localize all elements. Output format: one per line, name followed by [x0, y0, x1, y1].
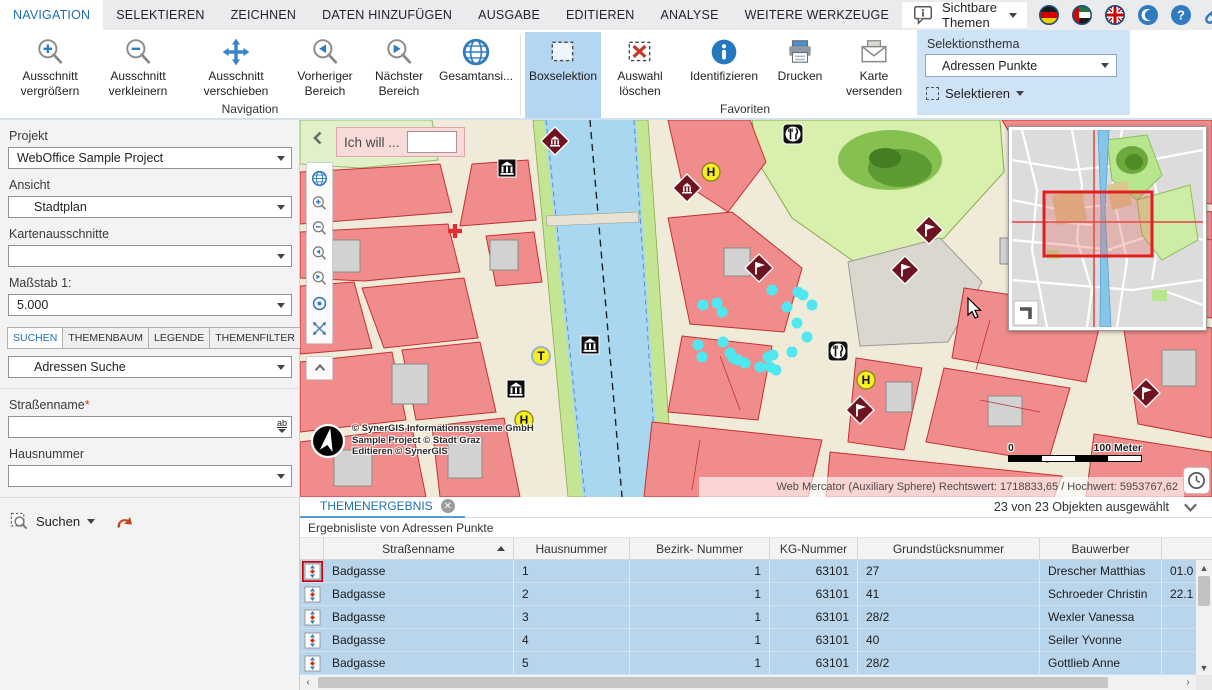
next-extent-map-icon[interactable]	[309, 267, 331, 289]
button-label: Gesamtansi...	[439, 69, 513, 84]
scale-dropdown[interactable]: 5.000	[8, 294, 292, 316]
crescent-language-icon[interactable]	[1137, 4, 1159, 26]
tab-analyse[interactable]: ANALYSE	[647, 0, 731, 30]
results-subtitle: Ergebnisliste von Adressen Punkte	[300, 518, 1212, 538]
selection-theme-value: Adressen Punkte	[942, 59, 1037, 73]
zoom-to-record-icon[interactable]	[300, 583, 324, 605]
cell-bezirk: 1	[630, 583, 770, 605]
search-theme-value: Adressen Suche	[17, 360, 126, 374]
print-button[interactable]: Drucken	[769, 32, 831, 104]
svg-text:H: H	[862, 373, 871, 387]
project-value: WebOffice Sample Project	[17, 151, 163, 165]
button-label: Boxselektion	[529, 69, 597, 84]
cell-bauwerber: Gottlieb Anne	[1040, 652, 1162, 674]
cell-datum	[1162, 652, 1196, 674]
table-row[interactable]: Badgasse 3 1 63101 28/2 Wexler Vanessa	[300, 606, 1212, 629]
table-row[interactable]: Badgasse 2 1 63101 41 Schroeder Christin…	[300, 583, 1212, 606]
group-label-navigation: Navigation	[195, 102, 305, 116]
search-button[interactable]: Suchen	[10, 512, 95, 531]
history-clock-button[interactable]	[1183, 467, 1210, 494]
overview-map-image	[1012, 130, 1203, 327]
svg-text:H: H	[707, 165, 716, 179]
menu-right-icons: Sichtbare Themen ?	[902, 0, 1212, 30]
selection-box-icon	[926, 87, 939, 100]
autocomplete-sort-icon[interactable]: ab	[277, 419, 287, 433]
clear-selection-button[interactable]: Auswahl löschen	[601, 32, 679, 104]
search-selection-icon	[10, 512, 29, 531]
button-label: versenden	[846, 84, 902, 99]
group-separator	[520, 35, 521, 115]
close-tab-icon[interactable]: ✕	[441, 499, 455, 513]
menu-bar: NAVIGATION SELEKTIEREN ZEICHNEN DATEN HI…	[0, 0, 1212, 30]
header-grundstuecksnummer[interactable]: Grundstücksnummer	[858, 538, 1040, 559]
selection-theme-dropdown[interactable]: Adressen Punkte	[925, 54, 1117, 77]
map-toolbar	[306, 162, 333, 344]
copyright-line1: © SynerGIS Informationssysteme GmbH	[352, 423, 534, 435]
cell-bauwerber: Drescher Matthias	[1040, 560, 1162, 582]
button-label: Ausschnitt	[110, 69, 165, 84]
cell-hausnummer: 3	[514, 606, 630, 628]
header-label: KG-Nummer	[780, 542, 847, 556]
cell-hausnummer: 5	[514, 652, 630, 674]
globe-icon	[461, 35, 491, 69]
collapse-panel-icon[interactable]	[1183, 502, 1198, 513]
tab-legende[interactable]: LEGENDE	[148, 327, 210, 349]
cell-datum	[1162, 629, 1196, 651]
tab-editieren[interactable]: EDITIEREN	[553, 0, 647, 30]
zoom-to-record-icon[interactable]	[300, 629, 324, 651]
tab-themenfilter[interactable]: THEMENFILTER	[209, 327, 301, 349]
table-row[interactable]: Badgasse 1 1 63101 27 Drescher Matthias …	[300, 560, 1212, 583]
selection-box-icon	[548, 35, 578, 69]
results-tab-label: THEMENERGEBNIS	[320, 499, 433, 513]
house-number-label: Hausnummer	[9, 447, 299, 461]
sidebar-collapse-button[interactable]	[307, 127, 329, 149]
cell-datum: 01.0	[1162, 560, 1196, 582]
tab-ausgabe[interactable]: AUSGABE	[465, 0, 553, 30]
flag-uk-icon[interactable]	[1104, 4, 1126, 26]
map-extents-dropdown[interactable]	[8, 245, 292, 267]
zoom-to-record-icon[interactable]	[300, 606, 324, 628]
chevron-down-icon	[277, 254, 285, 259]
button-label: Bereich	[379, 84, 420, 99]
button-label: Vorheriger	[297, 69, 352, 84]
svg-text:?: ?	[1177, 8, 1185, 23]
zoom-to-record-icon[interactable]	[300, 560, 324, 582]
reset-undo-icon[interactable]	[114, 513, 134, 531]
select-label: Selektieren	[945, 86, 1010, 101]
next-extent-button[interactable]: Nächster Bereich	[362, 32, 436, 104]
project-dropdown[interactable]: WebOffice Sample Project	[8, 147, 292, 169]
tab-daten-hinzufuegen[interactable]: DATEN HINZUFÜGEN	[309, 0, 465, 30]
cell-datum	[1162, 606, 1196, 628]
zoom-previous-icon	[310, 35, 340, 69]
zoom-in-button[interactable]: Ausschnitt vergrößern	[8, 32, 92, 104]
cell-grundstueck: 40	[858, 629, 1040, 651]
cell-strasse: Badgasse	[324, 629, 514, 651]
pan-mode-icon[interactable]	[309, 317, 331, 339]
help-icon[interactable]: ?	[1170, 4, 1192, 26]
pan-arrows-icon	[221, 35, 251, 69]
map-copyright: © SynerGIS Informationssysteme GmbH Samp…	[310, 423, 534, 459]
zoom-out-icon	[123, 35, 153, 69]
copyright-line2: Sample Project © Stadt Graz	[352, 435, 534, 447]
header-label: Grundstücksnummer	[893, 542, 1004, 556]
printer-icon	[785, 35, 815, 69]
button-label: Drucken	[778, 69, 823, 84]
chevron-down-icon	[277, 365, 285, 370]
cell-bezirk: 1	[630, 629, 770, 651]
visible-themes-dropdown[interactable]: Sichtbare Themen	[902, 2, 1027, 28]
view-value: Stadtplan	[17, 200, 87, 214]
header-bauwerber[interactable]: Bauwerber	[1040, 538, 1162, 559]
cell-hausnummer: 2	[514, 583, 630, 605]
selection-status: 23 von 23 Objekten ausgewählt	[994, 500, 1169, 514]
chevron-down-icon	[1016, 91, 1024, 96]
select-button[interactable]: Selektieren	[926, 86, 1130, 101]
button-label: Bereich	[305, 84, 346, 99]
ich-will-label: Ich will ...	[344, 135, 400, 150]
speech-bubble-info-icon	[912, 4, 934, 26]
cell-kg: 63101	[770, 652, 858, 674]
divider	[0, 388, 299, 389]
cell-datum: 22.1	[1162, 583, 1196, 605]
button-label: Identifizieren	[690, 69, 758, 84]
cell-kg: 63101	[770, 583, 858, 605]
chevron-down-icon	[277, 474, 285, 479]
project-label: Projekt	[9, 129, 299, 143]
tab-navigation[interactable]: NAVIGATION	[0, 0, 103, 30]
header-label: Bezirk- Nummer	[656, 542, 743, 556]
cell-strasse: Badgasse	[324, 583, 514, 605]
search-button-label: Suchen	[36, 514, 80, 529]
cell-bauwerber: Schroeder Christin	[1040, 583, 1162, 605]
box-selection-button[interactable]: Boxselektion	[525, 32, 601, 118]
flag-uae-icon[interactable]	[1071, 4, 1093, 26]
tab-themenbaum[interactable]: THEMENBAUM	[62, 327, 149, 349]
cell-hausnummer: 4	[514, 629, 630, 651]
cell-grundstueck: 28/2	[858, 606, 1040, 628]
header-kg-nummer[interactable]: KG-Nummer	[770, 538, 858, 559]
chevron-down-icon	[277, 205, 285, 210]
previous-extent-map-icon[interactable]	[309, 242, 331, 264]
scale-zero-label: 0	[1008, 442, 1014, 454]
cell-kg: 63101	[770, 560, 858, 582]
overview-collapse-icon[interactable]	[1014, 301, 1038, 325]
button-label: verschieben	[204, 84, 269, 99]
cell-bezirk: 1	[630, 560, 770, 582]
button-label: verkleinern	[109, 84, 168, 99]
view-label: Ansicht	[9, 178, 299, 192]
clear-selection-icon	[625, 35, 655, 69]
tab-weitere-werkzeuge[interactable]: WEITERE WERKZEUGE	[732, 0, 902, 30]
clock-icon	[1187, 471, 1206, 490]
chevron-down-icon	[1101, 63, 1109, 68]
scroll-down-icon[interactable]: ▼	[1196, 660, 1212, 675]
left-sidebar: Projekt WebOffice Sample Project Ansicht…	[0, 120, 300, 690]
scroll-left-icon[interactable]: ‹	[300, 677, 316, 688]
table-row[interactable]: Badgasse 5 1 63101 28/2 Gottlieb Anne	[300, 652, 1212, 675]
divider	[0, 497, 299, 498]
button-label: löschen	[619, 84, 660, 99]
header-bezirk-nummer[interactable]: Bezirk- Nummer	[630, 538, 770, 559]
button-label: vergrößern	[21, 84, 80, 99]
results-panel: THEMENERGEBNIS ✕ 23 von 23 Objekten ausg…	[300, 497, 1212, 690]
map-extents-label: Kartenausschnitte	[9, 227, 299, 241]
header-label: Straßenname	[382, 542, 455, 556]
cell-kg: 63101	[770, 629, 858, 651]
scrollbar-thumb[interactable]	[1198, 576, 1210, 606]
header-label: Bauwerber	[1071, 542, 1129, 556]
scale-value: 5.000	[17, 298, 48, 312]
previous-extent-button[interactable]: Vorheriger Bereich	[288, 32, 362, 104]
map-toolbar-collapse-button[interactable]	[306, 356, 333, 380]
sort-ascending-icon	[497, 546, 505, 551]
ribbon-toolbar: Ausschnitt vergrößern Ausschnitt verklei…	[0, 30, 1212, 120]
header-label: Hausnummer	[535, 542, 607, 556]
cell-bezirk: 1	[630, 652, 770, 674]
button-label: Ausschnitt	[22, 69, 77, 84]
header-datum[interactable]	[1162, 538, 1196, 559]
cell-strasse: Badgasse	[324, 560, 514, 582]
overview-map[interactable]	[1008, 126, 1207, 331]
cell-kg: 63101	[770, 606, 858, 628]
scrollbar-corner	[1196, 675, 1212, 690]
search-theme-dropdown[interactable]: Adressen Suche	[8, 356, 292, 378]
button-label: Nächster	[375, 69, 423, 84]
header-strassenname[interactable]: Straßenname	[324, 538, 514, 559]
button-label: Auswahl	[617, 69, 662, 84]
table-header: Straßenname Hausnummer Bezirk- Nummer KG…	[300, 538, 1212, 560]
scroll-up-icon[interactable]: ▲	[1196, 560, 1212, 575]
zoom-next-icon	[384, 35, 414, 69]
cell-bezirk: 1	[630, 606, 770, 628]
cell-bauwerber: Wexler Vanessa	[1040, 606, 1162, 628]
chevron-down-icon	[277, 156, 285, 161]
selection-theme-title: Selektionsthema	[917, 30, 1130, 54]
cell-grundstueck: 41	[858, 583, 1040, 605]
copyright-line3: Editieren © SynerGIS	[352, 446, 534, 458]
svg-text:T: T	[537, 349, 545, 363]
group-label-favoriten: Favoriten	[700, 102, 790, 116]
coordinates-text: Web Mercator (Auxiliary Sphere) Rechtswe…	[776, 481, 1178, 493]
ich-will-input[interactable]	[407, 131, 457, 153]
zoom-out-button[interactable]: Ausschnitt verkleinern	[92, 32, 184, 104]
cell-bauwerber: Seiler Yvonne	[1040, 629, 1162, 651]
map-canvas[interactable]: H H H T Ich will ...	[300, 120, 1212, 497]
center-position-icon[interactable]	[309, 292, 331, 314]
horizontal-scrollbar[interactable]: ‹ ›	[300, 675, 1212, 690]
vertical-scrollbar[interactable]: ▲ ▼	[1196, 560, 1212, 675]
zoom-in-map-icon[interactable]	[309, 192, 331, 214]
street-name-input[interactable]: ab	[8, 416, 292, 438]
full-extent-button[interactable]: Gesamtansi...	[436, 32, 516, 104]
overview-globe-icon[interactable]	[309, 167, 331, 189]
street-name-text: Straßenname	[9, 398, 85, 412]
identify-button[interactable]: Identifizieren	[679, 32, 769, 104]
visible-themes-label: Sichtbare Themen	[942, 0, 1001, 30]
cell-grundstueck: 28/2	[858, 652, 1040, 674]
cell-strasse: Badgasse	[324, 606, 514, 628]
selection-theme-panel: Selektionsthema Adressen Punkte Selektie…	[917, 30, 1130, 115]
north-arrow-logo-icon	[310, 423, 346, 459]
envelope-icon	[859, 35, 889, 69]
zoom-out-map-icon[interactable]	[309, 217, 331, 239]
tab-suchen[interactable]: SUCHEN	[7, 327, 63, 349]
chevron-down-icon	[87, 519, 95, 524]
cell-hausnummer: 1	[514, 560, 630, 582]
chevron-down-icon	[277, 303, 285, 308]
coordinate-readout: Web Mercator (Auxiliary Sphere) Rechtswe…	[699, 477, 1184, 497]
required-asterisk: *	[85, 398, 90, 412]
button-label: Karte	[860, 69, 889, 84]
info-icon	[709, 35, 739, 69]
link-icon[interactable]	[1203, 4, 1212, 26]
street-name-label: Straßenname*	[9, 398, 299, 412]
pan-button[interactable]: Ausschnitt verschieben	[184, 32, 288, 104]
cell-grundstueck: 27	[858, 560, 1040, 582]
house-number-dropdown[interactable]	[8, 465, 292, 487]
scale-bar: 0 100 Meter	[1008, 442, 1142, 462]
zoom-in-icon	[35, 35, 65, 69]
scale-distance-label: 100 Meter	[1094, 442, 1142, 454]
scroll-right-icon[interactable]: ›	[1180, 677, 1196, 688]
tab-selektieren[interactable]: SELEKTIEREN	[103, 0, 217, 30]
tab-themenergebnis[interactable]: THEMENERGEBNIS ✕	[300, 497, 465, 518]
scrollbar-thumb[interactable]	[318, 677, 1108, 688]
table-row[interactable]: Badgasse 4 1 63101 40 Seiler Yvonne	[300, 629, 1212, 652]
button-label: Ausschnitt	[208, 69, 263, 84]
tab-zeichnen[interactable]: ZEICHNEN	[218, 0, 310, 30]
scale-bar-graphic	[1008, 455, 1142, 462]
send-map-button[interactable]: Karte versenden	[831, 32, 917, 104]
flag-germany-icon[interactable]	[1038, 4, 1060, 26]
chevron-down-icon	[1009, 13, 1017, 18]
results-tab-row: THEMENERGEBNIS ✕ 23 von 23 Objekten ausg…	[300, 497, 1212, 518]
scale-label: Maßstab 1:	[9, 276, 299, 290]
view-dropdown[interactable]: Stadtplan	[8, 196, 292, 218]
header-icon-column	[300, 538, 324, 559]
header-hausnummer[interactable]: Hausnummer	[514, 538, 630, 559]
zoom-to-record-icon[interactable]	[300, 652, 324, 674]
cell-strasse: Badgasse	[324, 652, 514, 674]
sidebar-tabs: SUCHEN THEMENBAUM LEGENDE THEMENFILTER	[8, 327, 299, 349]
ich-will-prompt[interactable]: Ich will ...	[336, 127, 465, 157]
